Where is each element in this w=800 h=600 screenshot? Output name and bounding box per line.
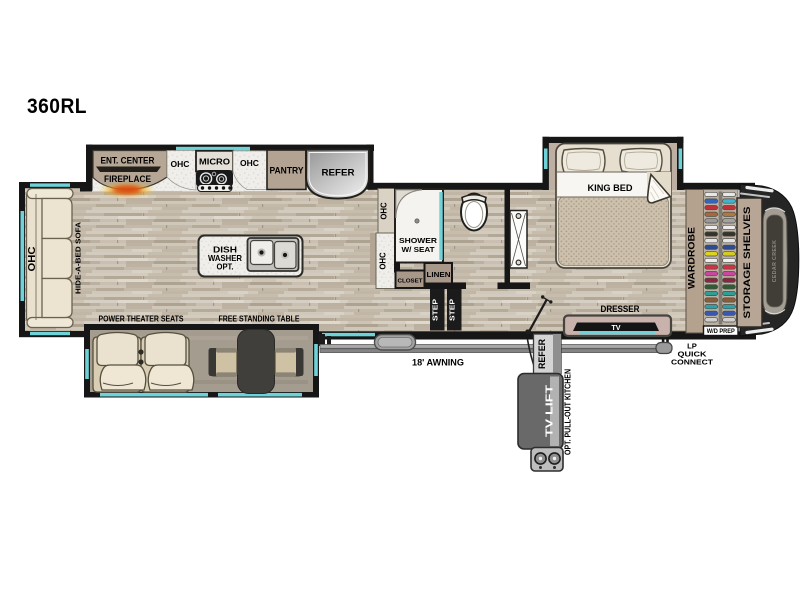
svg-text:KING BED: KING BED [588,183,633,194]
svg-text:W/D PREP: W/D PREP [707,328,735,335]
svg-text:MICRO: MICRO [199,157,231,167]
svg-text:CONNECT: CONNECT [671,358,713,367]
svg-text:OHC: OHC [26,246,38,271]
svg-text:OPT.: OPT. [217,263,234,272]
svg-text:18' AWNING: 18' AWNING [412,358,464,368]
svg-text:WARDROBE: WARDROBE [687,227,697,289]
svg-text:ENT. CENTER: ENT. CENTER [101,156,155,166]
svg-text:OHC: OHC [171,159,190,169]
svg-text:FREE STANDING TABLE: FREE STANDING TABLE [219,315,300,324]
svg-text:FIREPLACE: FIREPLACE [104,174,151,184]
svg-text:OHC: OHC [379,252,388,270]
svg-text:OHC: OHC [380,202,389,220]
svg-text:STEP: STEP [431,299,440,321]
svg-text:STEP: STEP [448,299,457,321]
svg-text:HIDE-A-BED SOFA: HIDE-A-BED SOFA [74,222,83,294]
svg-text:SHOWER: SHOWER [399,236,438,245]
svg-text:REFER: REFER [536,339,547,369]
svg-text:PANTRY: PANTRY [270,166,304,176]
svg-text:STORAGE SHELVES: STORAGE SHELVES [741,207,752,319]
svg-text:DRESSER: DRESSER [601,304,640,314]
svg-text:CEDAR CREEK: CEDAR CREEK [772,240,778,282]
svg-text:REFER: REFER [322,168,356,178]
svg-text:OHC: OHC [240,158,259,168]
svg-text:POWER THEATER SEATS: POWER THEATER SEATS [99,315,184,324]
svg-text:LINEN: LINEN [427,270,451,279]
svg-text:360RL: 360RL [27,95,87,118]
svg-text:W/ SEAT: W/ SEAT [402,245,436,254]
svg-text:CLOSET: CLOSET [398,279,423,285]
svg-text:TV LIFT: TV LIFT [544,384,556,437]
svg-text:TV: TV [611,323,620,332]
svg-text:OPT. PULL-OUT KITCHEN: OPT. PULL-OUT KITCHEN [564,369,573,455]
